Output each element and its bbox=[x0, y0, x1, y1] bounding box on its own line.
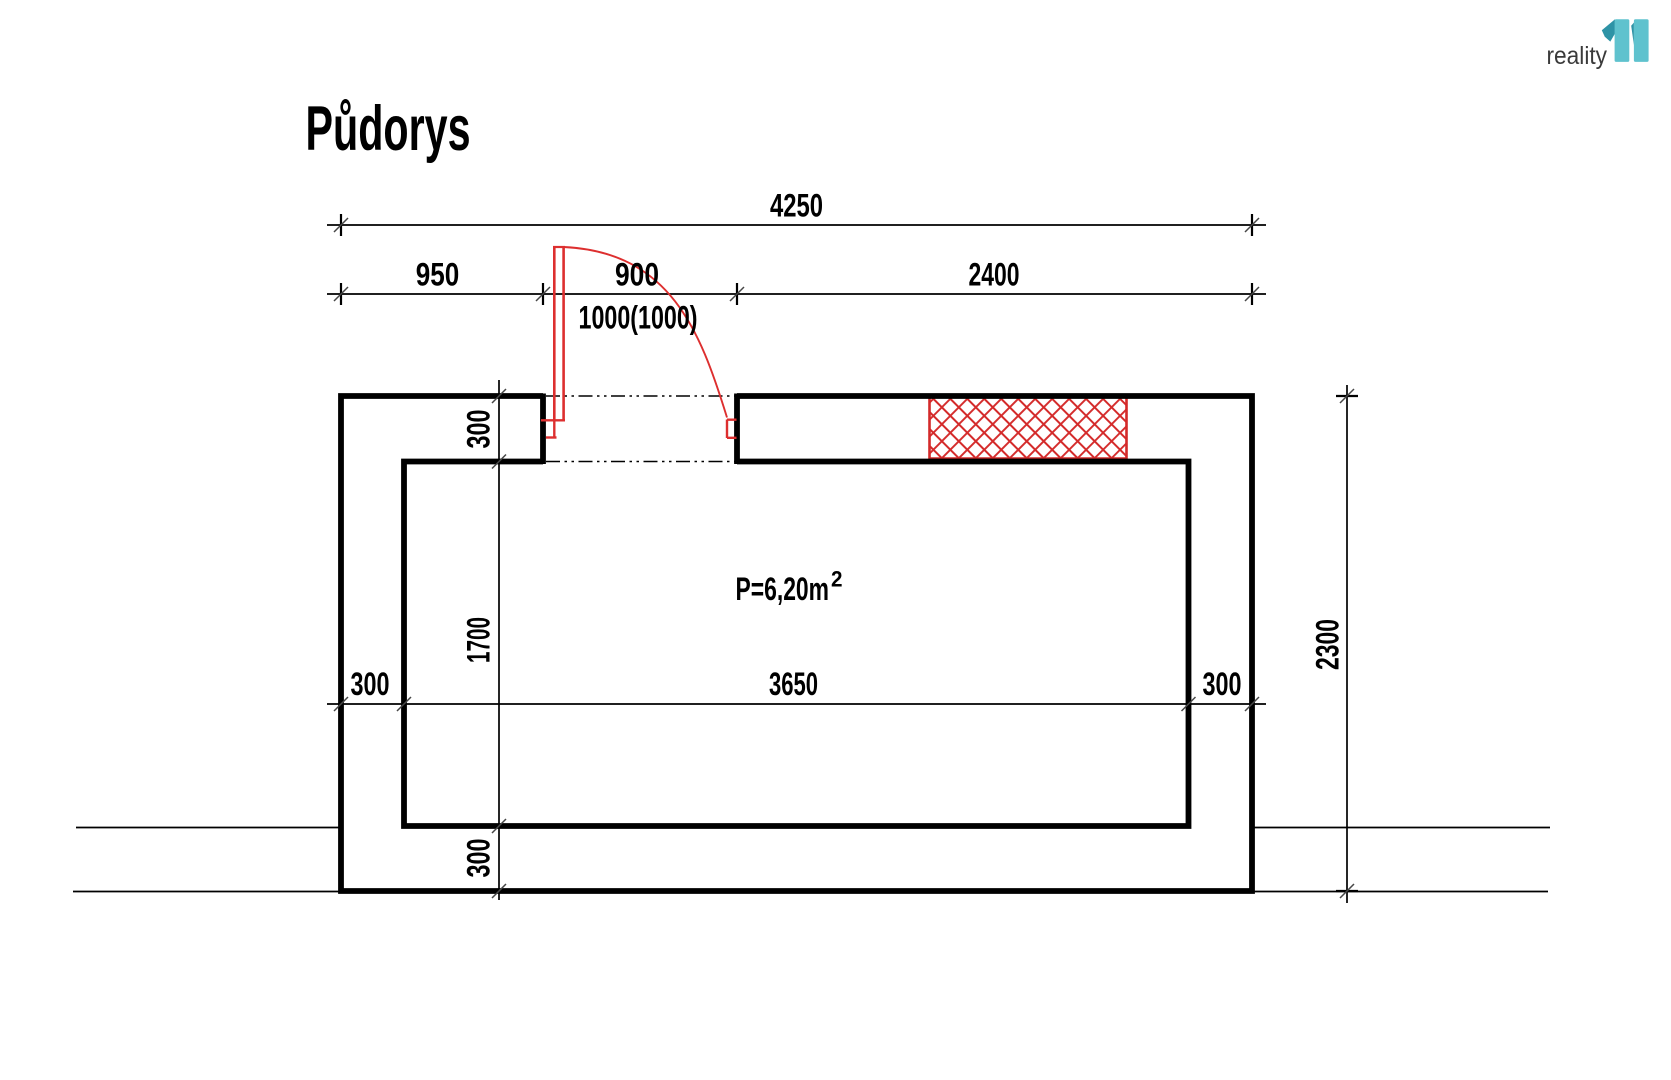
svg-text:1700: 1700 bbox=[461, 617, 497, 663]
svg-text:2400: 2400 bbox=[969, 257, 1020, 293]
svg-text:950: 950 bbox=[416, 257, 460, 293]
svg-text:300: 300 bbox=[351, 666, 390, 702]
svg-text:2300: 2300 bbox=[1310, 619, 1346, 670]
svg-text:300: 300 bbox=[461, 839, 497, 878]
svg-text:900: 900 bbox=[615, 257, 659, 293]
svg-text:3650: 3650 bbox=[769, 666, 818, 702]
svg-text:300: 300 bbox=[461, 410, 497, 449]
svg-text:2: 2 bbox=[831, 567, 843, 592]
svg-text:300: 300 bbox=[1203, 666, 1242, 702]
svg-text:P=6,20m: P=6,20m bbox=[736, 571, 830, 607]
svg-text:4250: 4250 bbox=[770, 188, 823, 224]
svg-text:reality: reality bbox=[1547, 42, 1608, 70]
svg-text:1000(1000): 1000(1000) bbox=[579, 300, 698, 336]
svg-text:Půdorys: Půdorys bbox=[306, 94, 471, 164]
